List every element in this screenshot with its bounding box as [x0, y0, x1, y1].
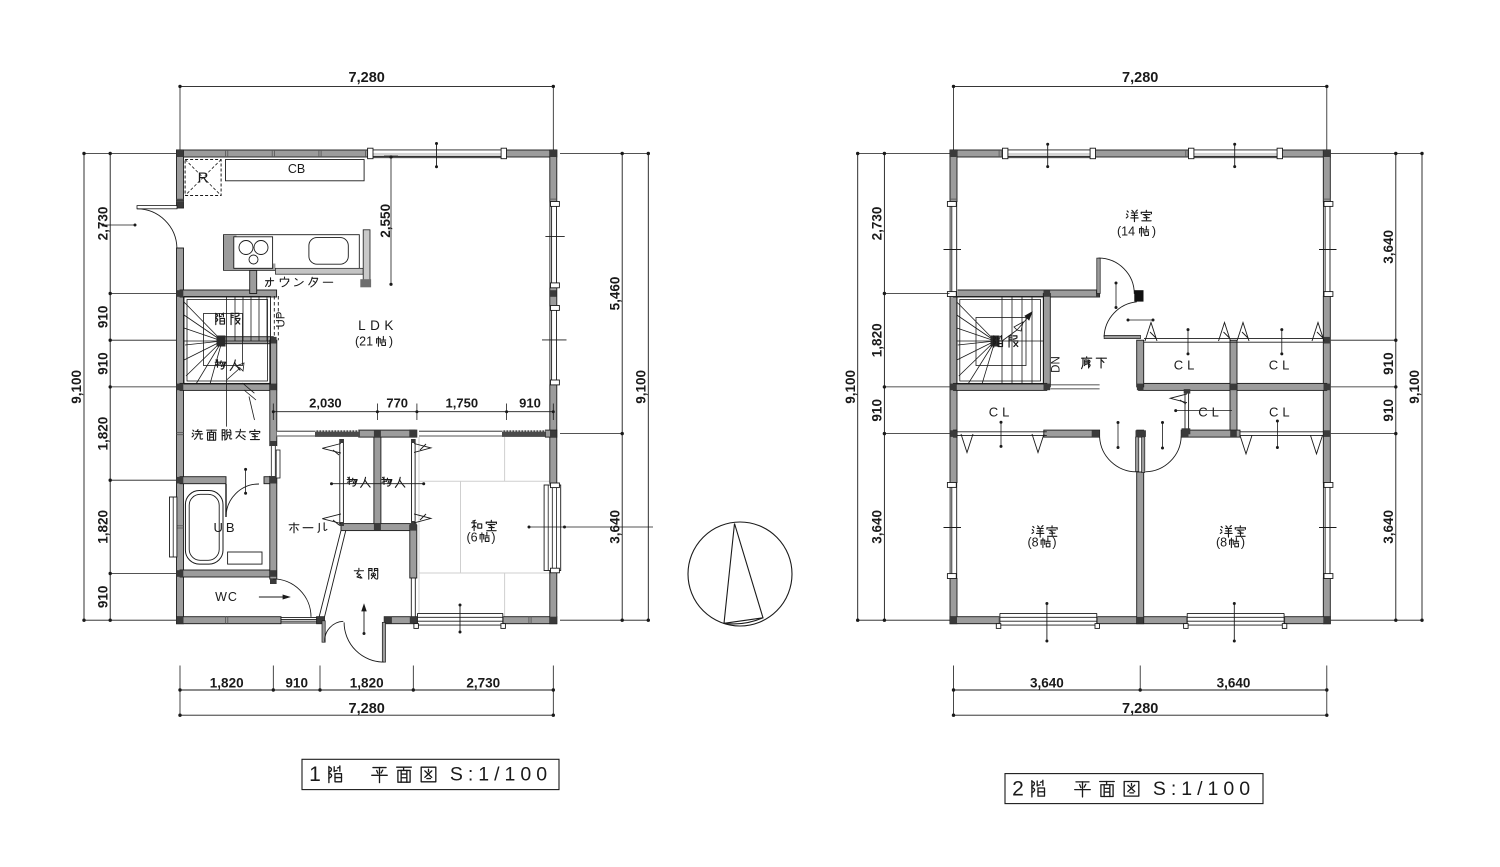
svg-text:2: 2: [1012, 777, 1024, 800]
svg-text:): ): [1152, 224, 1156, 238]
svg-text:770: 770: [386, 396, 408, 411]
svg-text:2,030: 2,030: [309, 396, 342, 411]
svg-text:910: 910: [95, 352, 110, 375]
svg-text:(6: (6: [466, 530, 477, 544]
svg-text:910: 910: [869, 399, 884, 422]
svg-text:S:1/100: S:1/100: [1153, 778, 1255, 800]
svg-text:7,280: 7,280: [349, 70, 385, 86]
svg-text:CL: CL: [1174, 358, 1199, 373]
svg-text:3,640: 3,640: [869, 510, 884, 544]
svg-text:): ): [1241, 536, 1245, 550]
svg-text:CL: CL: [1269, 358, 1294, 373]
svg-text:UB: UB: [213, 520, 237, 535]
svg-text:9,100: 9,100: [69, 370, 84, 404]
svg-text:1,820: 1,820: [350, 676, 384, 691]
svg-text:1: 1: [309, 763, 321, 786]
svg-text:CL: CL: [989, 404, 1014, 419]
svg-text:910: 910: [1381, 352, 1396, 375]
svg-text:(8: (8: [1027, 536, 1038, 550]
svg-text:1,820: 1,820: [95, 417, 110, 451]
svg-text:910: 910: [95, 306, 110, 329]
svg-text:CL: CL: [1269, 404, 1294, 419]
svg-text:WC: WC: [215, 590, 238, 604]
svg-text:1,750: 1,750: [446, 396, 479, 411]
svg-text:2,730: 2,730: [466, 676, 500, 691]
svg-text:S:1/100: S:1/100: [450, 764, 552, 786]
svg-text:7,280: 7,280: [1122, 70, 1158, 86]
svg-text:): ): [1052, 536, 1056, 550]
svg-text:UP: UP: [276, 311, 288, 327]
svg-text:5,460: 5,460: [607, 277, 622, 311]
svg-text:910: 910: [95, 586, 110, 609]
svg-text:CL: CL: [1198, 404, 1223, 419]
svg-text:CB: CB: [288, 162, 305, 176]
svg-text:): ): [491, 530, 495, 544]
svg-text:(8: (8: [1216, 536, 1227, 550]
svg-text:2,730: 2,730: [869, 207, 884, 241]
svg-text:(14: (14: [1117, 224, 1135, 238]
svg-text:7,280: 7,280: [349, 701, 385, 717]
svg-text:9,100: 9,100: [843, 370, 858, 404]
svg-text:3,640: 3,640: [1217, 676, 1251, 691]
svg-text:9,100: 9,100: [633, 370, 648, 404]
svg-text:3,640: 3,640: [1030, 676, 1064, 691]
svg-text:3,640: 3,640: [607, 510, 622, 544]
svg-text:1,820: 1,820: [95, 510, 110, 544]
svg-text:910: 910: [285, 676, 308, 691]
svg-text:9,100: 9,100: [1407, 370, 1422, 404]
svg-text:): ): [389, 334, 393, 348]
svg-text:1,820: 1,820: [210, 676, 244, 691]
svg-text:LDK: LDK: [358, 318, 398, 333]
svg-text:910: 910: [1381, 399, 1396, 422]
svg-text:DN: DN: [1051, 356, 1063, 373]
svg-text:1,820: 1,820: [869, 323, 884, 357]
svg-text:2,550: 2,550: [378, 204, 393, 238]
svg-text:2,730: 2,730: [95, 207, 110, 241]
svg-text:3,640: 3,640: [1381, 510, 1396, 544]
svg-text:7,280: 7,280: [1122, 701, 1158, 717]
svg-text:R: R: [198, 169, 209, 186]
svg-text:910: 910: [519, 396, 541, 411]
svg-text:(21: (21: [355, 334, 373, 348]
svg-text:3,640: 3,640: [1381, 230, 1396, 264]
